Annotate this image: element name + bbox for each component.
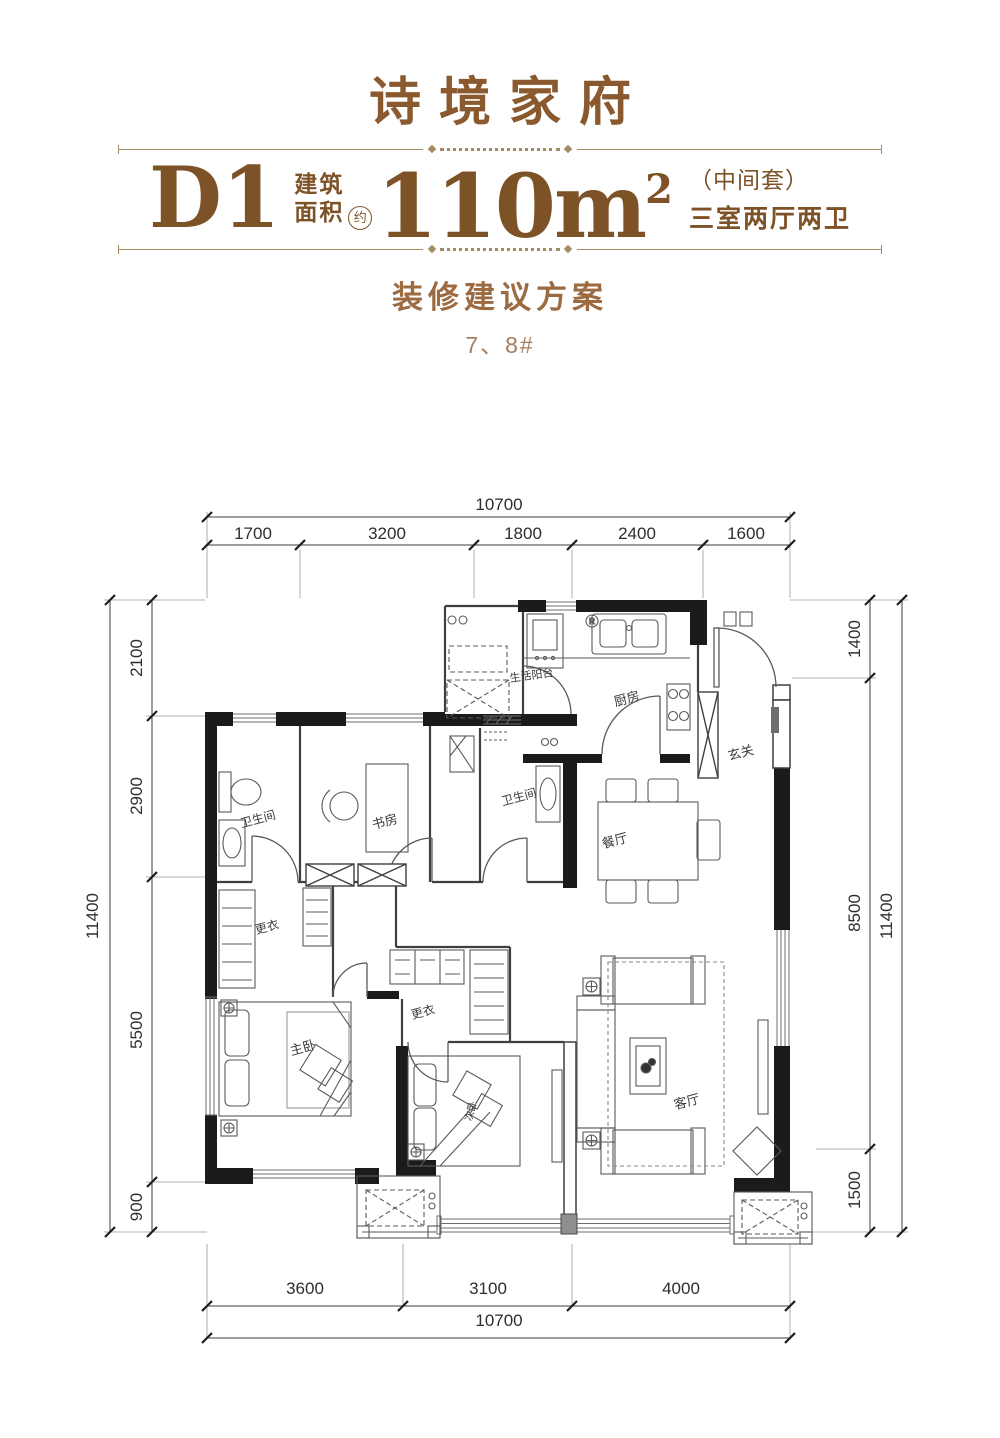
dim-top-overall: 10700	[475, 495, 522, 514]
tv-cabinet	[758, 1020, 768, 1114]
dim-right-seg-2: 1500	[845, 1171, 864, 1209]
pillow	[225, 1010, 249, 1056]
toilet-bowl	[231, 779, 261, 805]
dim-right-seg-1: 8500	[845, 894, 864, 932]
dim-left-overall: 11400	[83, 893, 102, 939]
dim-bottom-overall: 10700	[475, 1311, 522, 1330]
dim-bottom-seg-0: 3600	[286, 1279, 324, 1298]
room-label-kitchen: 厨房	[612, 688, 641, 709]
dim-left-seg-2: 5500	[127, 1011, 146, 1049]
ac-platform-right	[734, 1192, 812, 1244]
study-chair	[330, 792, 358, 820]
ac-platform-left	[357, 1176, 440, 1238]
bath-left-door	[252, 836, 298, 882]
dim-top-seg-2: 1800	[504, 524, 542, 543]
dim-bottom-seg-1: 3100	[469, 1279, 507, 1298]
bath-right-fixtures	[484, 732, 560, 822]
room-label-study: 书房	[370, 811, 399, 832]
second-bed	[408, 1056, 562, 1166]
dim-left-seg-0: 2100	[127, 639, 146, 677]
floor-plan-page: 诗境家府 D1 建筑 面积 约 110m2 （中间套） 三室两厅两卫 装修建议方…	[0, 0, 1000, 1438]
room-label-bath-left: 卫生间	[239, 808, 277, 831]
sofa-long	[577, 1010, 615, 1128]
sofa-seat-bottom	[613, 1130, 693, 1174]
foyer-cabinet	[724, 612, 752, 626]
dim-right-seg-0: 1400	[845, 620, 864, 658]
master-bed	[219, 1002, 352, 1116]
dim-top-seg-4: 1600	[727, 524, 765, 543]
room-label-dressing-left: 更衣	[253, 916, 280, 937]
room-label-master-bedroom: 主卧	[288, 1037, 317, 1058]
side-table	[733, 1127, 781, 1175]
dim-bottom-seg-2: 4000	[662, 1279, 700, 1298]
room-label-living: 客厅	[672, 1091, 701, 1112]
furniture: R	[219, 612, 812, 1244]
balcony-washer	[447, 646, 509, 718]
wardrobes	[219, 888, 508, 1034]
gas-meter-label: R	[589, 617, 595, 626]
dim-top-seg-1: 3200	[368, 524, 406, 543]
bottom-pillar	[561, 1214, 577, 1234]
dim-left-seg-1: 2900	[127, 777, 146, 815]
room-label-dressing-right: 更衣	[409, 1001, 436, 1022]
sofa-seat-top	[613, 958, 693, 1004]
toilet-tank	[219, 772, 231, 812]
floor-plan-drawing: 10700 1700 3200 1800 2400 1600 11400 210…	[0, 0, 1000, 1438]
ac-units	[221, 978, 600, 1160]
bath-right-door	[483, 838, 527, 882]
dim-right-overall: 11400	[877, 893, 896, 939]
dim-left-seg-3: 900	[127, 1193, 146, 1221]
master-door	[333, 963, 367, 997]
pillow	[225, 1060, 249, 1106]
study-furniture	[322, 764, 408, 852]
living-room-set	[577, 956, 781, 1175]
meter-box	[771, 707, 779, 733]
pillow	[414, 1064, 436, 1106]
study-desk	[366, 764, 408, 852]
room-label-bath-right: 卫生间	[500, 786, 538, 809]
room-label-foyer: 玄关	[726, 742, 755, 763]
dim-top-seg-3: 2400	[618, 524, 656, 543]
entry-door-leaf	[714, 628, 719, 687]
entry-door-arc	[717, 628, 776, 687]
second-bedroom-cabinet	[552, 1070, 562, 1162]
dim-top-seg-0: 1700	[234, 524, 272, 543]
room-label-dining: 餐厅	[600, 830, 629, 851]
